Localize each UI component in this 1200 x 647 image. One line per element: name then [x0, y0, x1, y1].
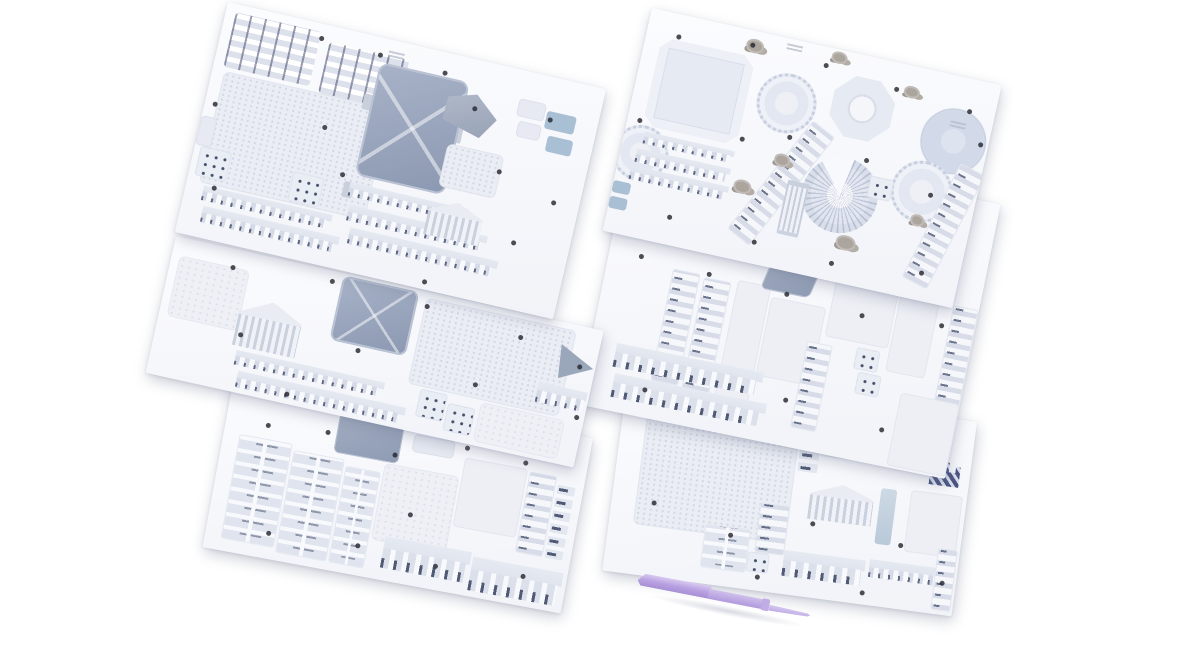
punch-hole: [784, 291, 790, 297]
punch-hole: [319, 36, 325, 42]
punch-hole: [828, 260, 834, 266]
window-block-piece: [415, 389, 448, 422]
punch-hole: [638, 254, 644, 260]
wide-tooth-comb-piece: [380, 536, 472, 584]
sheet-code-mark: [786, 42, 803, 52]
punch-hole: [637, 118, 643, 124]
punch-hole: [755, 574, 761, 580]
punch-hole: [783, 397, 789, 403]
punch-hole: [676, 34, 682, 40]
window-block-piece: [442, 403, 475, 436]
small-panel-piece: [516, 98, 547, 122]
slate-roof-square-piece: [329, 275, 419, 356]
punch-hole: [751, 239, 757, 245]
chamfered-base-plate-piece: [643, 37, 756, 146]
window-block-piece: [853, 347, 881, 373]
punch-hole: [939, 323, 945, 329]
punch-hole: [496, 169, 502, 175]
window-block-piece: [854, 372, 882, 398]
blue-tab-piece: [544, 111, 577, 135]
punch-hole: [898, 543, 904, 549]
punch-hole: [329, 278, 335, 284]
punch-hole: [879, 427, 885, 433]
punch-hole: [739, 136, 745, 142]
punch-hole: [667, 214, 673, 220]
temple-pediment-piece: [807, 481, 875, 527]
punch-hole: [442, 70, 448, 76]
temple-pediment-piece: [232, 296, 305, 359]
punch-hole: [787, 134, 793, 140]
ladder-strip-piece: [754, 502, 790, 555]
plain-panel-piece: [903, 490, 963, 558]
tan-cluster-piece: [745, 37, 766, 55]
punch-hole: [265, 423, 271, 429]
punch-hole: [523, 460, 529, 466]
punch-hole: [511, 240, 517, 246]
punch-hole: [325, 430, 331, 436]
wide-tooth-comb-piece: [467, 557, 564, 607]
blue-tab-piece: [545, 135, 574, 156]
tool-blade: [637, 572, 712, 599]
blue-tab-piece: [611, 180, 631, 196]
punch-hole: [551, 200, 557, 206]
punch-hole: [706, 271, 712, 277]
punch-hole: [355, 348, 361, 354]
tan-cluster-piece: [831, 50, 849, 65]
punch-hole: [810, 521, 816, 527]
tan-cluster-piece: [903, 85, 921, 100]
textured-panel-piece: [438, 143, 504, 199]
kit-photo-canvas: [0, 0, 1200, 630]
punch-hole: [574, 415, 580, 421]
punch-hole: [864, 158, 870, 164]
punch-hole: [823, 63, 829, 69]
wide-tooth-comb-piece: [781, 550, 866, 586]
plain-panel-piece: [453, 457, 529, 537]
tan-cluster-piece: [834, 234, 857, 253]
pale-blue-bar-piece: [874, 488, 897, 546]
blue-tab-piece: [608, 195, 628, 211]
punch-hole: [859, 590, 865, 596]
small-panel-piece: [515, 120, 542, 141]
tan-cluster-piece: [732, 178, 753, 196]
ladder-strip-piece: [930, 548, 958, 612]
tool-shaft: [707, 589, 764, 610]
window-block-piece: [746, 551, 770, 574]
octagon-ring-piece: [825, 72, 899, 146]
punch-hole: [894, 86, 900, 92]
punch-hole: [465, 445, 471, 451]
punch-hole: [422, 279, 428, 285]
tool-tip: [768, 605, 810, 619]
slat-strip-stack-piece: [700, 523, 751, 573]
